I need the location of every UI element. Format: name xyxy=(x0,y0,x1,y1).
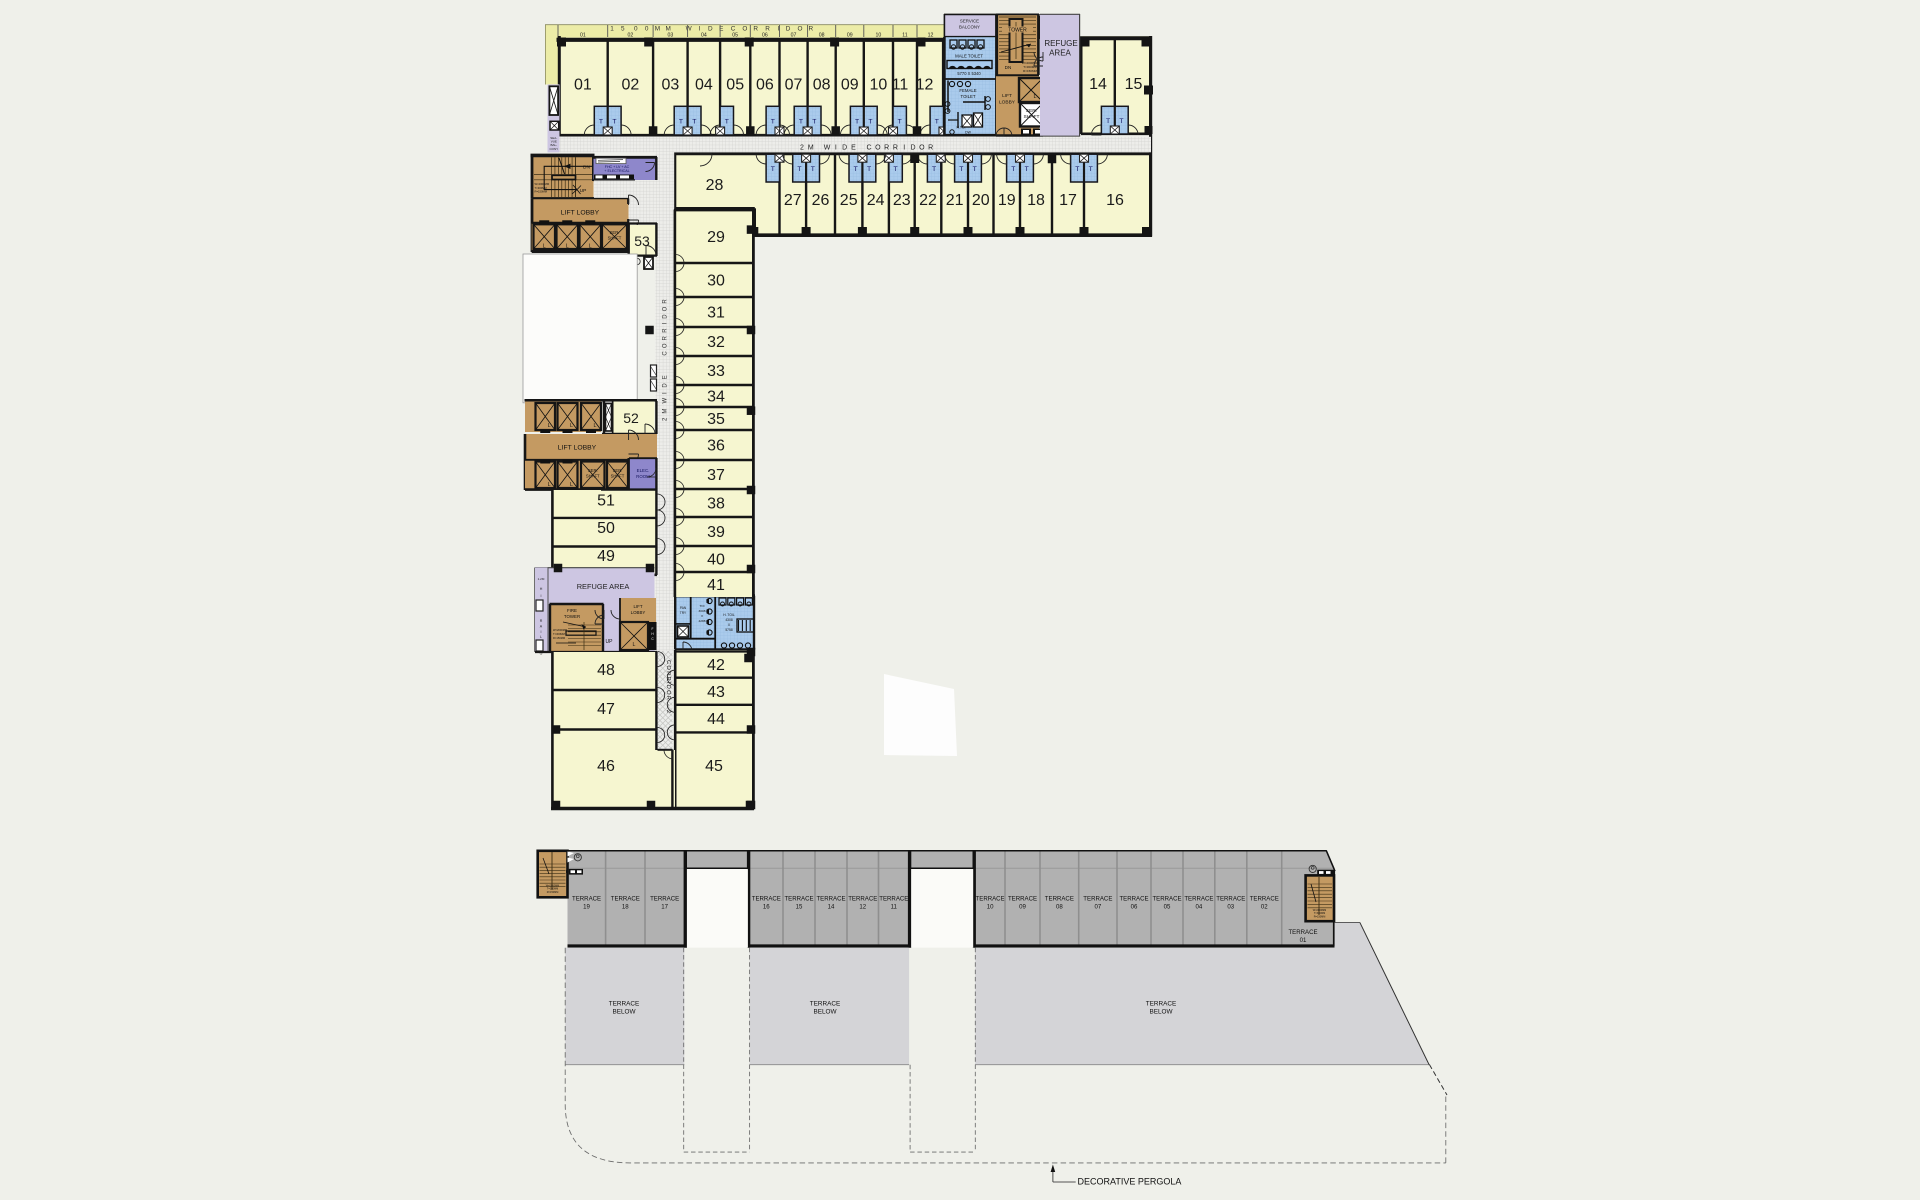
svg-text:03: 03 xyxy=(667,32,673,38)
svg-text:SERVICE: SERVICE xyxy=(960,19,979,24)
svg-text:02: 02 xyxy=(1261,904,1268,911)
svg-text:LIFT LOBBY: LIFT LOBBY xyxy=(561,210,600,217)
svg-text:T: T xyxy=(612,119,616,126)
svg-text:T: T xyxy=(771,119,775,126)
svg-text:SHAFT: SHAFT xyxy=(586,474,600,479)
svg-text:19: 19 xyxy=(998,192,1016,209)
svg-text:DECORATIVE PERGOLA: DECORATIVE PERGOLA xyxy=(1078,1177,1182,1187)
svg-text:LIFT: LIFT xyxy=(1002,93,1012,99)
svg-text:11: 11 xyxy=(892,77,909,94)
svg-text:10: 10 xyxy=(870,77,888,94)
svg-text:15: 15 xyxy=(796,904,803,911)
svg-text:T: T xyxy=(1075,166,1079,173)
svg-text:03: 03 xyxy=(661,77,679,94)
svg-text:TERRACE: TERRACE xyxy=(784,896,813,903)
svg-text:05: 05 xyxy=(726,77,744,94)
svg-text:12: 12 xyxy=(859,904,866,911)
svg-text:TOI: TOI xyxy=(699,604,704,608)
svg-text:H. TOIL: H. TOIL xyxy=(723,613,735,617)
svg-text:39: 39 xyxy=(707,524,725,541)
svg-text:SHAFT: SHAFT xyxy=(608,236,622,241)
svg-text:45: 45 xyxy=(705,758,723,775)
svg-text:TERRACE: TERRACE xyxy=(976,896,1005,903)
svg-text:07: 07 xyxy=(785,77,803,94)
svg-text:CORRIDOR - 2: CORRIDOR - 2 xyxy=(665,660,671,714)
svg-text:T: T xyxy=(692,119,696,126)
svg-text:16: 16 xyxy=(1106,192,1124,209)
svg-text:25: 25 xyxy=(840,192,858,209)
svg-text:T: T xyxy=(799,119,803,126)
svg-text:5758: 5758 xyxy=(725,628,733,632)
svg-text:04: 04 xyxy=(695,77,713,94)
svg-text:06: 06 xyxy=(1131,904,1138,911)
svg-text:ROOM: ROOM xyxy=(636,474,650,479)
svg-text:AREA: AREA xyxy=(1049,49,1071,58)
svg-text:W: W xyxy=(824,144,831,151)
svg-text:16: 16 xyxy=(763,904,770,911)
svg-text:11: 11 xyxy=(891,904,898,911)
svg-text:DN: DN xyxy=(583,164,590,170)
svg-text:REFUGE AREA: REFUGE AREA xyxy=(577,582,630,591)
svg-text:D: D xyxy=(708,26,713,33)
svg-text:T: T xyxy=(935,119,939,126)
svg-text:R=150MM: R=150MM xyxy=(1314,915,1326,918)
svg-text:15: 15 xyxy=(1125,76,1143,93)
svg-text:TOWER: TOWER xyxy=(1008,28,1027,34)
svg-text:T: T xyxy=(868,119,872,126)
svg-text:04: 04 xyxy=(701,32,707,38)
svg-text:26: 26 xyxy=(812,192,830,209)
svg-text:T: T xyxy=(1089,166,1093,173)
svg-text:D: D xyxy=(842,144,847,151)
svg-text:06: 06 xyxy=(756,77,774,94)
svg-text:02: 02 xyxy=(628,32,634,38)
svg-text:LIFT LOBBY: LIFT LOBBY xyxy=(558,445,597,452)
svg-text:0: 0 xyxy=(634,26,638,33)
svg-text:TERRACE: TERRACE xyxy=(650,896,679,903)
svg-text:TERRACE: TERRACE xyxy=(1152,896,1181,903)
svg-text:05: 05 xyxy=(1164,904,1171,911)
svg-text:TERRACE: TERRACE xyxy=(1008,896,1037,903)
svg-text:BELOW: BELOW xyxy=(612,1009,636,1016)
svg-text:SER.: SER. xyxy=(1026,108,1037,114)
svg-text:TERRACE: TERRACE xyxy=(1119,896,1148,903)
svg-text:BELOW: BELOW xyxy=(813,1009,837,1016)
svg-text:F: F xyxy=(652,627,654,631)
svg-text:O: O xyxy=(919,144,925,151)
svg-text:19: 19 xyxy=(583,904,590,911)
svg-text:TERRACE: TERRACE xyxy=(1146,1001,1177,1008)
svg-text:52: 52 xyxy=(623,410,639,426)
svg-text:UP: UP xyxy=(606,639,614,645)
svg-text:T: T xyxy=(1119,118,1123,125)
svg-text:TERRACE: TERRACE xyxy=(810,1001,841,1008)
svg-text:R=150MM: R=150MM xyxy=(553,636,565,640)
svg-text:01: 01 xyxy=(574,77,592,94)
svg-text:05: 05 xyxy=(732,32,738,38)
svg-text:BALCONY: BALCONY xyxy=(959,25,980,30)
svg-text:X: X xyxy=(701,614,703,618)
svg-text:09: 09 xyxy=(847,32,853,38)
svg-text:UP: UP xyxy=(580,188,587,194)
svg-text:L: L xyxy=(1033,94,1036,100)
svg-text:REFUGE: REFUGE xyxy=(1044,39,1077,48)
svg-text:SER.: SER. xyxy=(610,230,620,235)
svg-text:TERRACE: TERRACE xyxy=(1184,896,1213,903)
svg-text:5770 X 5340: 5770 X 5340 xyxy=(957,71,981,76)
svg-text:17: 17 xyxy=(1059,192,1077,209)
svg-text:R: R xyxy=(663,299,669,304)
svg-text:T: T xyxy=(1025,166,1029,173)
svg-text:44: 44 xyxy=(707,711,725,728)
svg-text:I: I xyxy=(541,630,542,634)
svg-text:R: R xyxy=(893,144,898,151)
svg-text:31: 31 xyxy=(707,305,725,322)
svg-text:T: T xyxy=(811,166,815,173)
svg-text:11: 11 xyxy=(902,32,907,38)
svg-text:FEMALE: FEMALE xyxy=(959,88,976,93)
svg-text:T=300MM: T=300MM xyxy=(553,632,565,636)
svg-text:R=150MM: R=150MM xyxy=(1023,69,1037,73)
svg-text:C: C xyxy=(663,351,669,356)
svg-text:DN: DN xyxy=(1005,65,1012,70)
svg-text:M: M xyxy=(808,144,814,151)
svg-text:L: L xyxy=(543,244,546,250)
svg-text:46: 46 xyxy=(597,758,615,775)
svg-text:SHAFT: SHAFT xyxy=(1023,114,1039,120)
svg-text:L: L xyxy=(570,423,573,429)
svg-text:O: O xyxy=(798,26,803,33)
svg-text:T: T xyxy=(1011,166,1015,173)
svg-text:R: R xyxy=(663,335,669,340)
svg-text:R=150MM: R=150MM xyxy=(535,189,548,193)
svg-text:36: 36 xyxy=(707,438,725,455)
svg-text:FIRE: FIRE xyxy=(567,608,577,613)
svg-text:T: T xyxy=(894,166,898,173)
svg-text:48: 48 xyxy=(597,662,615,679)
svg-text:+ ELECTRICAL: + ELECTRICAL xyxy=(604,169,629,173)
svg-text:CONY: CONY xyxy=(549,147,558,151)
svg-text:L: L xyxy=(566,244,569,250)
svg-text:R: R xyxy=(928,144,933,151)
svg-text:I: I xyxy=(903,144,905,151)
svg-text:38: 38 xyxy=(707,496,725,513)
svg-text:T: T xyxy=(812,119,816,126)
svg-text:33: 33 xyxy=(707,363,725,380)
svg-text:47: 47 xyxy=(597,701,615,718)
svg-text:LOBBY: LOBBY xyxy=(999,100,1016,106)
svg-text:SER.: SER. xyxy=(588,468,598,473)
svg-text:SER.: SER. xyxy=(613,468,623,473)
svg-text:R: R xyxy=(884,144,889,151)
svg-text:W: W xyxy=(663,397,669,403)
svg-text:20: 20 xyxy=(972,192,990,209)
svg-text:TERRACE: TERRACE xyxy=(1250,896,1279,903)
svg-text:L: L xyxy=(570,482,573,488)
svg-text:TERRACE: TERRACE xyxy=(1083,896,1112,903)
svg-text:TERRACE: TERRACE xyxy=(848,896,877,903)
svg-text:O: O xyxy=(875,144,881,151)
svg-text:41: 41 xyxy=(707,577,725,594)
svg-text:37: 37 xyxy=(707,467,725,484)
svg-text:FHC + LV + AC: FHC + LV + AC xyxy=(605,165,630,169)
svg-text:03: 03 xyxy=(1227,904,1234,911)
svg-text:M: M xyxy=(663,409,669,414)
svg-text:18: 18 xyxy=(1027,192,1045,209)
svg-text:28: 28 xyxy=(706,177,724,194)
svg-text:T: T xyxy=(932,166,936,173)
svg-text:TERRACE: TERRACE xyxy=(1216,896,1245,903)
svg-text:T: T xyxy=(797,166,801,173)
svg-text:30: 30 xyxy=(707,273,725,290)
svg-text:2: 2 xyxy=(800,144,804,151)
svg-text:12: 12 xyxy=(928,32,934,38)
svg-text:TOILET: TOILET xyxy=(961,94,976,99)
svg-text:43: 43 xyxy=(707,684,725,701)
svg-text:35: 35 xyxy=(707,411,725,428)
svg-text:1.2M: 1.2M xyxy=(538,577,545,581)
svg-text:T: T xyxy=(679,119,683,126)
svg-text:0: 0 xyxy=(645,26,649,33)
svg-text:T: T xyxy=(867,166,871,173)
svg-text:D: D xyxy=(910,144,915,151)
svg-text:O: O xyxy=(742,26,747,33)
svg-text:T: T xyxy=(599,119,603,126)
svg-text:TERRACE: TERRACE xyxy=(609,1001,640,1008)
svg-text:06: 06 xyxy=(762,32,768,38)
svg-text:L: L xyxy=(589,244,592,250)
svg-text:24: 24 xyxy=(867,192,885,209)
svg-text:4288: 4288 xyxy=(699,619,706,623)
svg-text:TERRACE: TERRACE xyxy=(1288,929,1317,936)
svg-text:TERRACE: TERRACE xyxy=(611,896,640,903)
svg-text:09: 09 xyxy=(1019,904,1026,911)
svg-text:L: L xyxy=(633,642,636,648)
svg-text:07: 07 xyxy=(791,32,797,38)
svg-text:4308: 4308 xyxy=(725,618,733,622)
svg-text:R: R xyxy=(753,26,758,33)
svg-text:42: 42 xyxy=(707,657,725,674)
svg-text:12: 12 xyxy=(916,77,934,94)
svg-text:TOWER: TOWER xyxy=(564,614,580,619)
svg-text:49: 49 xyxy=(597,548,615,565)
svg-text:O: O xyxy=(663,343,669,348)
svg-text:50: 50 xyxy=(597,520,615,537)
svg-text:T=300MM: T=300MM xyxy=(535,186,548,190)
svg-text:BELOW: BELOW xyxy=(1149,1009,1173,1016)
svg-text:TERRACE: TERRACE xyxy=(752,896,781,903)
svg-text:W: W xyxy=(686,26,693,33)
svg-text:22: 22 xyxy=(919,192,937,209)
svg-text:02: 02 xyxy=(622,77,640,94)
svg-text:R: R xyxy=(663,328,669,333)
svg-text:TERRACE: TERRACE xyxy=(879,896,908,903)
svg-text:08: 08 xyxy=(819,32,825,38)
svg-text:3008: 3008 xyxy=(699,609,706,613)
svg-text:LOBBY: LOBBY xyxy=(631,610,646,615)
svg-text:1: 1 xyxy=(610,26,614,33)
svg-text:D: D xyxy=(663,383,669,388)
svg-text:T: T xyxy=(959,166,963,173)
svg-text:32: 32 xyxy=(707,334,725,351)
svg-text:08: 08 xyxy=(813,77,831,94)
svg-text:R=150MM: R=150MM xyxy=(547,891,559,894)
svg-text:L: L xyxy=(548,423,551,429)
svg-text:SHAFT: SHAFT xyxy=(611,474,625,479)
svg-text:08: 08 xyxy=(1056,904,1063,911)
svg-text:I: I xyxy=(541,594,542,598)
svg-text:D: D xyxy=(663,314,669,319)
svg-text:T: T xyxy=(725,119,729,126)
svg-text:T: T xyxy=(771,166,775,173)
svg-text:5: 5 xyxy=(621,26,625,33)
svg-text:17: 17 xyxy=(661,904,668,911)
svg-text:04: 04 xyxy=(1196,904,1203,911)
svg-text:40: 40 xyxy=(707,552,725,569)
svg-text:TERRACE: TERRACE xyxy=(572,896,601,903)
svg-text:MALE TOILET: MALE TOILET xyxy=(955,54,983,59)
svg-text:W=2000MM: W=2000MM xyxy=(553,628,567,632)
svg-text:01: 01 xyxy=(1300,937,1307,944)
svg-text:C: C xyxy=(866,144,871,151)
svg-text:ELEC.: ELEC. xyxy=(637,468,650,473)
svg-text:LIFT: LIFT xyxy=(633,604,642,609)
svg-text:21: 21 xyxy=(946,192,964,209)
svg-text:TRY: TRY xyxy=(680,611,687,615)
svg-text:I: I xyxy=(835,144,837,151)
svg-text:T: T xyxy=(1106,118,1110,125)
svg-text:W=2000MM: W=2000MM xyxy=(535,182,550,186)
svg-text:23: 23 xyxy=(893,192,911,209)
svg-text:E: E xyxy=(851,144,856,151)
svg-text:51: 51 xyxy=(597,493,615,510)
svg-text:53: 53 xyxy=(634,233,650,249)
svg-text:14: 14 xyxy=(828,904,835,911)
svg-text:R: R xyxy=(540,619,543,623)
svg-text:R: R xyxy=(808,26,813,33)
svg-text:18: 18 xyxy=(622,904,629,911)
svg-text:14: 14 xyxy=(1089,76,1107,93)
svg-text:10: 10 xyxy=(876,32,882,38)
svg-text:L: L xyxy=(594,423,597,429)
svg-text:T: T xyxy=(973,166,977,173)
svg-text:09: 09 xyxy=(841,77,859,94)
svg-text:M: M xyxy=(655,26,660,33)
svg-text:10: 10 xyxy=(987,904,994,911)
svg-text:H: H xyxy=(540,587,543,591)
svg-text:PAN: PAN xyxy=(680,606,687,610)
svg-text:E: E xyxy=(663,375,669,379)
svg-text:TERRACE: TERRACE xyxy=(1045,896,1074,903)
svg-text:34: 34 xyxy=(707,389,725,406)
svg-text:29: 29 xyxy=(707,229,725,246)
svg-text:TERRACE: TERRACE xyxy=(816,896,845,903)
svg-text:07: 07 xyxy=(1094,904,1101,911)
svg-text:T: T xyxy=(855,119,859,126)
svg-text:L: L xyxy=(548,482,551,488)
svg-text:T: T xyxy=(854,166,858,173)
svg-text:27: 27 xyxy=(784,192,802,209)
svg-text:01: 01 xyxy=(580,32,586,38)
svg-text:L: L xyxy=(540,635,542,639)
svg-text:T: T xyxy=(898,119,902,126)
svg-text:O: O xyxy=(663,306,669,311)
